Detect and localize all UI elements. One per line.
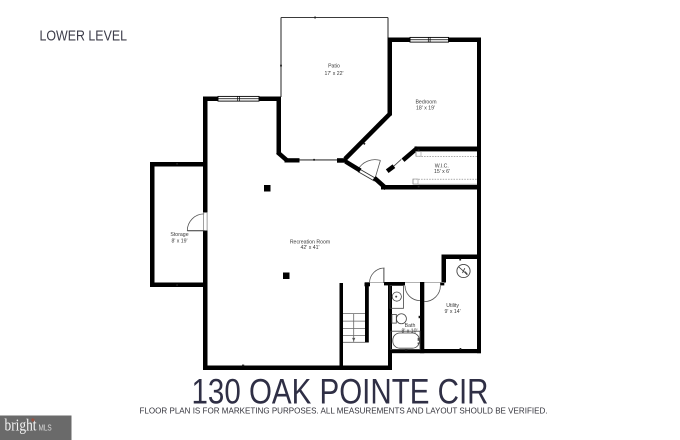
svg-text:FLOOR PLAN IS FOR MARKETING PU: FLOOR PLAN IS FOR MARKETING PURPOSES. AL… — [140, 406, 548, 416]
svg-text:15' x 6': 15' x 6' — [434, 169, 450, 175]
svg-text:bright: bright — [5, 416, 37, 435]
svg-text:18' x 19': 18' x 19' — [416, 105, 435, 111]
svg-text:Storage: Storage — [170, 232, 188, 238]
svg-text:8' x 10': 8' x 10' — [401, 328, 417, 334]
svg-text:9' x 14': 9' x 14' — [445, 309, 461, 315]
svg-text:42' x 41': 42' x 41' — [301, 245, 320, 251]
svg-text:LOWER LEVEL: LOWER LEVEL — [40, 28, 128, 44]
svg-text:17' x 22': 17' x 22' — [325, 71, 344, 77]
svg-text:Patio: Patio — [328, 64, 340, 70]
svg-text:MLS: MLS — [39, 423, 52, 433]
svg-text:8' x 19': 8' x 19' — [171, 238, 187, 244]
